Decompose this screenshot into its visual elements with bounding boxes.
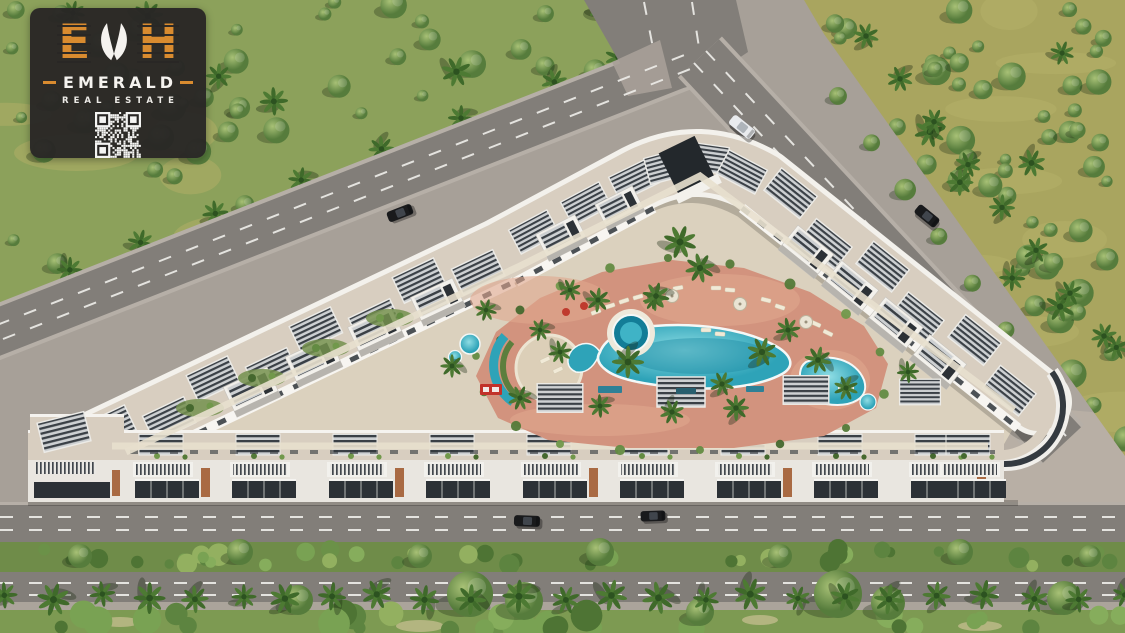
boulevard-bottom <box>0 502 1125 633</box>
monogram-letter-right: H <box>137 18 178 68</box>
monogram-letter-left: E <box>57 18 91 68</box>
dash-icon <box>180 81 193 84</box>
brand-name-row: EMERALD <box>43 73 193 92</box>
aerial-render-page: E H EMERALD REAL ESTATE <box>0 0 1125 633</box>
brand-monogram: E H <box>57 16 178 68</box>
dash-icon <box>43 81 56 84</box>
monogram-leaf-icon <box>93 17 135 67</box>
brand-badge: E H EMERALD REAL ESTATE <box>30 8 206 158</box>
brand-tagline: REAL ESTATE <box>62 96 179 106</box>
brand-name: EMERALD <box>63 73 177 92</box>
qr-code <box>95 112 141 158</box>
